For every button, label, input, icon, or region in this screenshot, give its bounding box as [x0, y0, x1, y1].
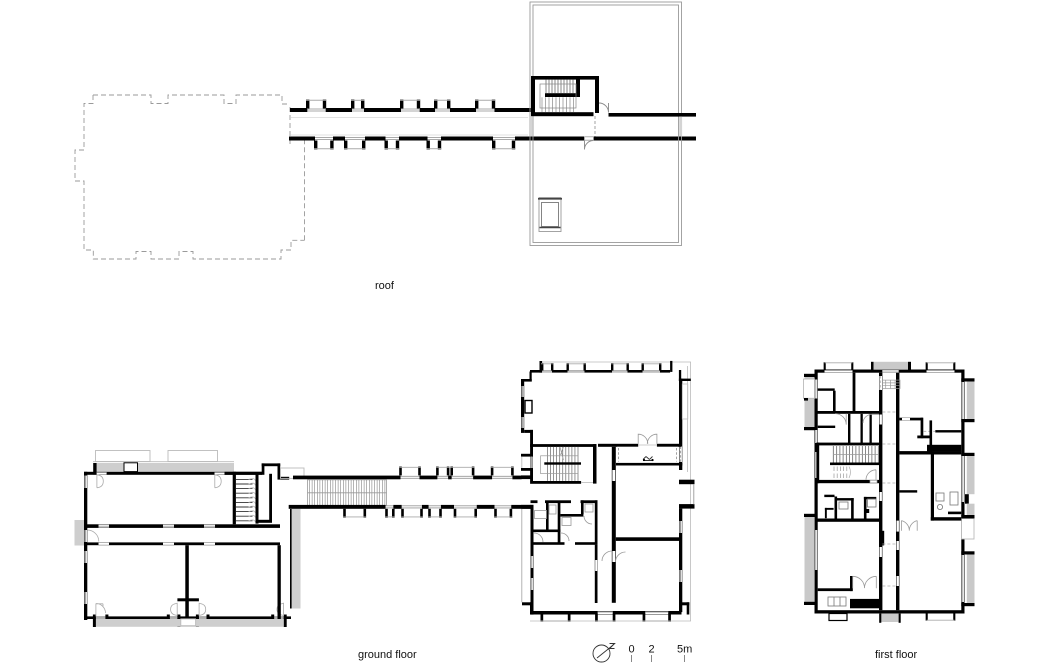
svg-text:ground floor: ground floor — [358, 649, 417, 661]
svg-text:2: 2 — [649, 644, 655, 656]
svg-text:0: 0 — [629, 644, 635, 656]
svg-text:5m: 5m — [677, 644, 692, 656]
svg-text:first floor: first floor — [875, 649, 918, 661]
svg-text:roof: roof — [375, 280, 395, 292]
